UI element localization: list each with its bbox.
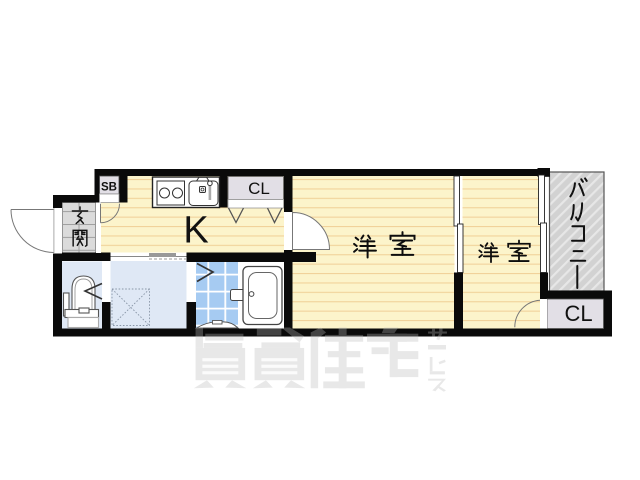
svg-text:K: K xyxy=(183,210,208,252)
svg-text:CL: CL xyxy=(248,179,270,198)
svg-text:CL: CL xyxy=(564,301,592,326)
svg-text:SB: SB xyxy=(101,182,117,194)
